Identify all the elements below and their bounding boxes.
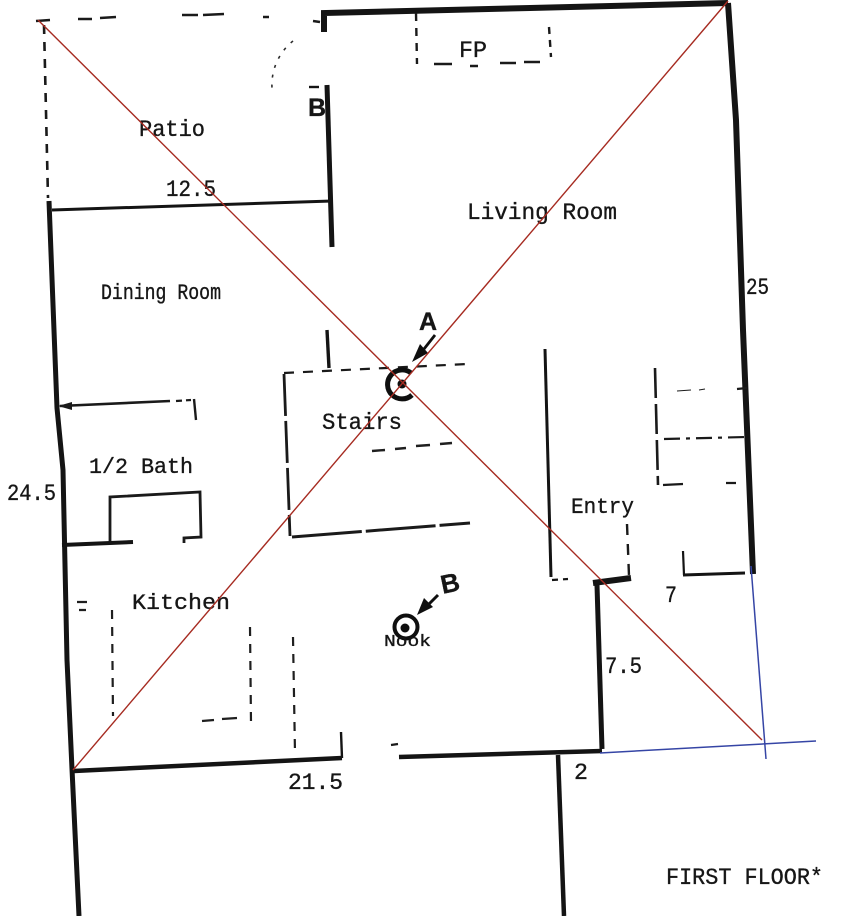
- svg-text:7: 7: [665, 583, 677, 609]
- svg-text:2: 2: [574, 760, 588, 786]
- svg-text:Stairs: Stairs: [322, 410, 402, 436]
- svg-text:B: B: [308, 94, 326, 122]
- svg-text:FIRST FLOOR*: FIRST FLOOR*: [666, 865, 823, 891]
- svg-text:21.5: 21.5: [288, 770, 343, 796]
- svg-text:Nook: Nook: [384, 633, 431, 652]
- svg-text:Dining Room: Dining Room: [101, 281, 221, 306]
- svg-text:25: 25: [746, 275, 769, 301]
- svg-text:1/2 Bath: 1/2 Bath: [89, 455, 193, 480]
- svg-text:Entry: Entry: [571, 495, 634, 520]
- svg-text:24.5: 24.5: [7, 481, 56, 507]
- svg-text:Living Room: Living Room: [467, 200, 617, 226]
- svg-text:FP: FP: [459, 38, 487, 64]
- svg-text:7.5: 7.5: [605, 654, 642, 680]
- svg-text:A: A: [419, 308, 437, 336]
